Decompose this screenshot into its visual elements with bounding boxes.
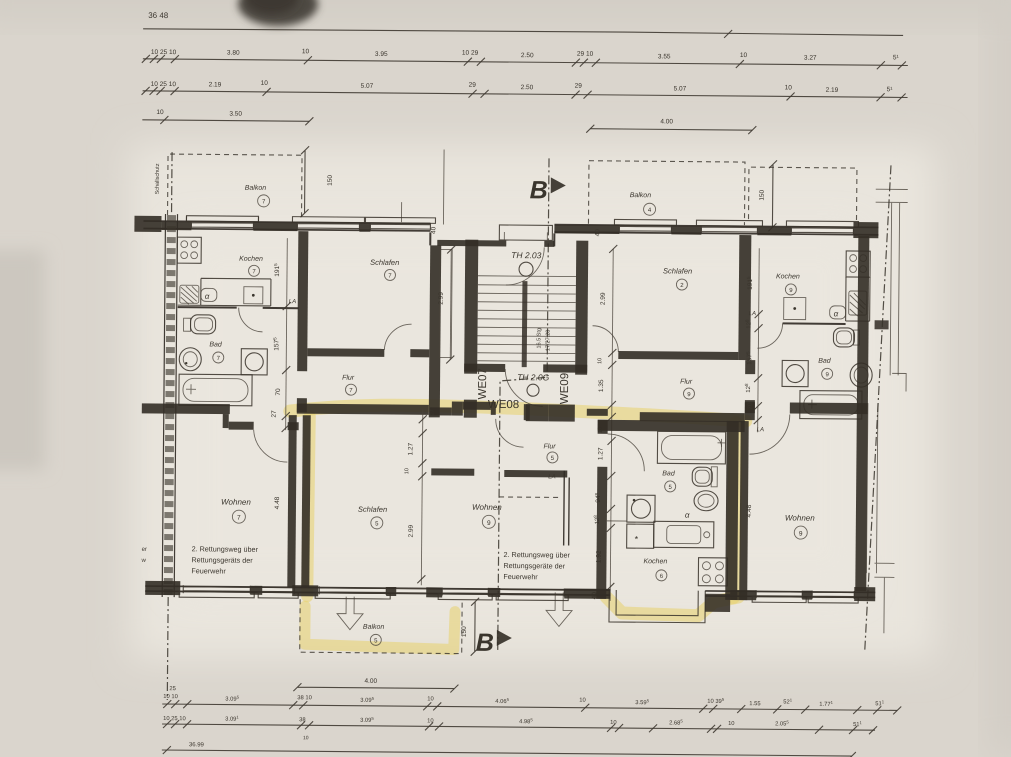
svg-text:3.50: 3.50: [229, 111, 242, 118]
svg-text:36 48: 36 48: [148, 11, 169, 20]
svg-text:10: 10: [156, 109, 164, 116]
svg-text:10: 10: [427, 696, 434, 702]
svg-text:*: *: [635, 534, 639, 544]
svg-text:Kochen: Kochen: [776, 273, 800, 280]
svg-text:Wohnen: Wohnen: [221, 498, 251, 507]
svg-text:α: α: [834, 309, 839, 318]
svg-text:5.07: 5.07: [674, 85, 687, 92]
svg-text:Flur: Flur: [342, 375, 355, 382]
svg-text:Kochen: Kochen: [239, 256, 263, 263]
svg-text:4.00: 4.00: [364, 678, 377, 685]
svg-text:10: 10: [404, 468, 410, 474]
svg-text:Bad: Bad: [818, 358, 832, 365]
svg-text:5¹: 5¹: [887, 86, 894, 93]
svg-text:70: 70: [275, 388, 282, 396]
svg-text:B: B: [530, 176, 548, 204]
svg-text:Kochen: Kochen: [643, 558, 667, 565]
svg-text:10: 10: [261, 80, 269, 87]
svg-text:10: 10: [579, 698, 586, 704]
svg-text:Bad: Bad: [662, 470, 676, 477]
svg-text:2.50: 2.50: [521, 52, 534, 59]
svg-text:LA: LA: [548, 474, 555, 480]
svg-text:10 10: 10 10: [163, 694, 178, 700]
svg-text:Schlafen: Schlafen: [370, 258, 399, 267]
svg-text:1.35: 1.35: [598, 379, 605, 392]
svg-text:2. Rettungsweg über: 2. Rettungsweg über: [192, 544, 259, 554]
svg-text:10: 10: [427, 718, 434, 724]
svg-text:α: α: [685, 511, 690, 520]
svg-text:38 10: 38 10: [297, 695, 312, 701]
svg-text:10: 10: [303, 735, 309, 741]
svg-text:150: 150: [327, 175, 334, 186]
svg-text:16.5 Stg: 16.5 Stg: [536, 328, 542, 349]
svg-text:38: 38: [299, 717, 306, 723]
svg-text:10: 10: [597, 358, 603, 364]
svg-text:2.99: 2.99: [438, 292, 445, 305]
svg-text:150: 150: [759, 189, 766, 200]
svg-text:4.00: 4.00: [660, 118, 673, 125]
svg-text:5.07: 5.07: [361, 83, 374, 90]
svg-text:9: 9: [799, 531, 803, 538]
svg-text:WE09: WE09: [559, 373, 571, 404]
svg-text:TH 2.0G: TH 2.0G: [517, 372, 550, 382]
svg-text:10: 10: [785, 84, 793, 91]
svg-text:α: α: [205, 292, 210, 301]
svg-text:Feuerwehr: Feuerwehr: [191, 566, 226, 575]
svg-text:Rettungsgeräts der: Rettungsgeräts der: [191, 555, 253, 565]
svg-text:1.55: 1.55: [749, 701, 760, 707]
svg-text:10: 10: [302, 48, 310, 55]
svg-text:2.99: 2.99: [408, 524, 415, 537]
svg-text:er: er: [142, 547, 147, 553]
svg-text:29: 29: [469, 82, 477, 89]
svg-text:Balkon: Balkon: [630, 192, 652, 199]
svg-text:150: 150: [461, 626, 468, 637]
svg-text:27: 27: [430, 409, 436, 415]
svg-text:25: 25: [169, 686, 176, 692]
svg-text:10 29: 10 29: [462, 50, 479, 57]
svg-text:10 25 10: 10 25 10: [151, 49, 177, 56]
svg-text:2. Rettungsweg über: 2. Rettungsweg über: [504, 550, 571, 560]
svg-text:1.27: 1.27: [407, 442, 414, 455]
svg-text:40: 40: [430, 226, 437, 234]
svg-text:Balkon: Balkon: [363, 624, 385, 631]
svg-text:WE07: WE07: [477, 368, 489, 399]
svg-text:2.19: 2.19: [826, 87, 839, 94]
svg-text:2.50: 2.50: [521, 84, 534, 91]
svg-text:Schlafen: Schlafen: [358, 505, 387, 514]
svg-text:4.48: 4.48: [274, 496, 281, 509]
svg-text:10 25 10: 10 25 10: [163, 716, 186, 722]
svg-text:10: 10: [728, 721, 735, 727]
svg-text:LA: LA: [289, 299, 296, 305]
svg-text:2.19: 2.19: [209, 81, 222, 88]
svg-text:LA: LA: [749, 311, 756, 317]
svg-text:70: 70: [747, 402, 754, 410]
svg-text:2.99: 2.99: [600, 292, 607, 305]
svg-text:Flur: Flur: [680, 379, 693, 386]
svg-text:10 25 10: 10 25 10: [151, 81, 177, 88]
svg-text:29 10: 29 10: [577, 51, 594, 58]
svg-text:Wohnen: Wohnen: [472, 503, 502, 512]
svg-text:10: 10: [610, 720, 617, 726]
svg-text:10: 10: [740, 52, 748, 59]
svg-text:Schlafen: Schlafen: [663, 266, 692, 275]
svg-text:Schallschutz: Schallschutz: [155, 163, 161, 194]
svg-text:Wohnen: Wohnen: [785, 513, 815, 522]
svg-text:B: B: [476, 629, 494, 657]
svg-text:29: 29: [575, 83, 583, 90]
svg-text:36.99: 36.99: [189, 742, 205, 748]
svg-text:7: 7: [237, 515, 241, 522]
svg-text:3.95: 3.95: [375, 51, 388, 58]
svg-text:3.55: 3.55: [658, 53, 671, 60]
svg-text:27: 27: [271, 410, 278, 418]
svg-text:5¹: 5¹: [893, 54, 900, 61]
svg-text:TH 2.03: TH 2.03: [511, 250, 542, 260]
svg-text:4.48: 4.48: [746, 504, 753, 517]
svg-text:Feuerwehr: Feuerwehr: [503, 572, 538, 581]
svg-text:3.27: 3.27: [804, 55, 817, 62]
svg-text:40: 40: [594, 229, 601, 237]
svg-text:Rettungsgeräte der: Rettungsgeräte der: [503, 561, 565, 571]
svg-text:1.27: 1.27: [597, 447, 604, 460]
svg-text:w: w: [140, 558, 146, 564]
svg-text:Bad: Bad: [209, 341, 223, 348]
svg-text:9: 9: [487, 520, 491, 527]
svg-text:3.80: 3.80: [227, 50, 240, 57]
svg-text:17/27.28: 17/27.28: [545, 330, 551, 351]
svg-text:Balkon: Balkon: [245, 185, 267, 192]
svg-text:Flur: Flur: [543, 443, 556, 450]
